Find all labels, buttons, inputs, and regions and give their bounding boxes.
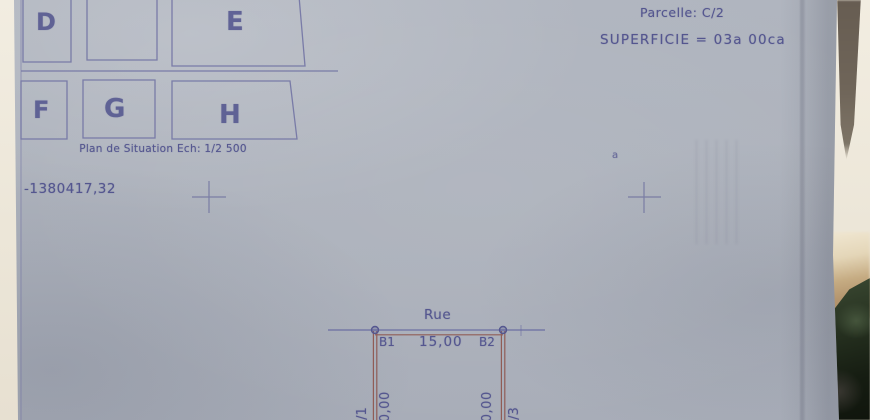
situation-grid [21, 0, 338, 420]
parcel-left-edge [373, 331, 376, 420]
cell-label-h: H [219, 100, 241, 130]
parcelle-label: Parcelle: C/2 [640, 5, 724, 20]
corner-label-b1: B1 [379, 335, 395, 349]
photographed-cadastral-plan: D E F G H Plan de Situation Ech: 1/2 500… [0, 0, 870, 420]
cell-label-g: G [104, 94, 125, 124]
cell-label-f: F [33, 96, 49, 124]
cell-label-d: D [36, 8, 56, 36]
neighbor-parcel-right: C/3 [507, 407, 522, 420]
corner-marker-b1 [372, 327, 379, 334]
cell-label-e: E [226, 7, 244, 37]
situation-plan-caption: Plan de Situation Ech: 1/2 500 [75, 143, 251, 155]
parcel-right-edge [501, 331, 504, 420]
coordinate-value: -1380417,32 [24, 181, 116, 197]
annotation-a: a [612, 150, 618, 161]
grid-cell-middle [87, 0, 157, 60]
corner-label-b2: B2 [479, 335, 495, 349]
depth-dimension-left: 20,00 [378, 391, 393, 420]
neighbor-parcel-left: C/1 [355, 407, 370, 420]
corner-marker-b2 [500, 327, 507, 334]
superficie-label: SUPERFICIE = 03a 00ca [600, 32, 786, 48]
survey-cross-right [628, 182, 661, 213]
depth-dimension-right: 20,00 [480, 391, 495, 420]
survey-cross-left [192, 181, 226, 213]
front-width-dimension: 15,00 [419, 334, 463, 350]
plan-linework [0, 0, 870, 420]
street-name: Rue [424, 307, 451, 323]
